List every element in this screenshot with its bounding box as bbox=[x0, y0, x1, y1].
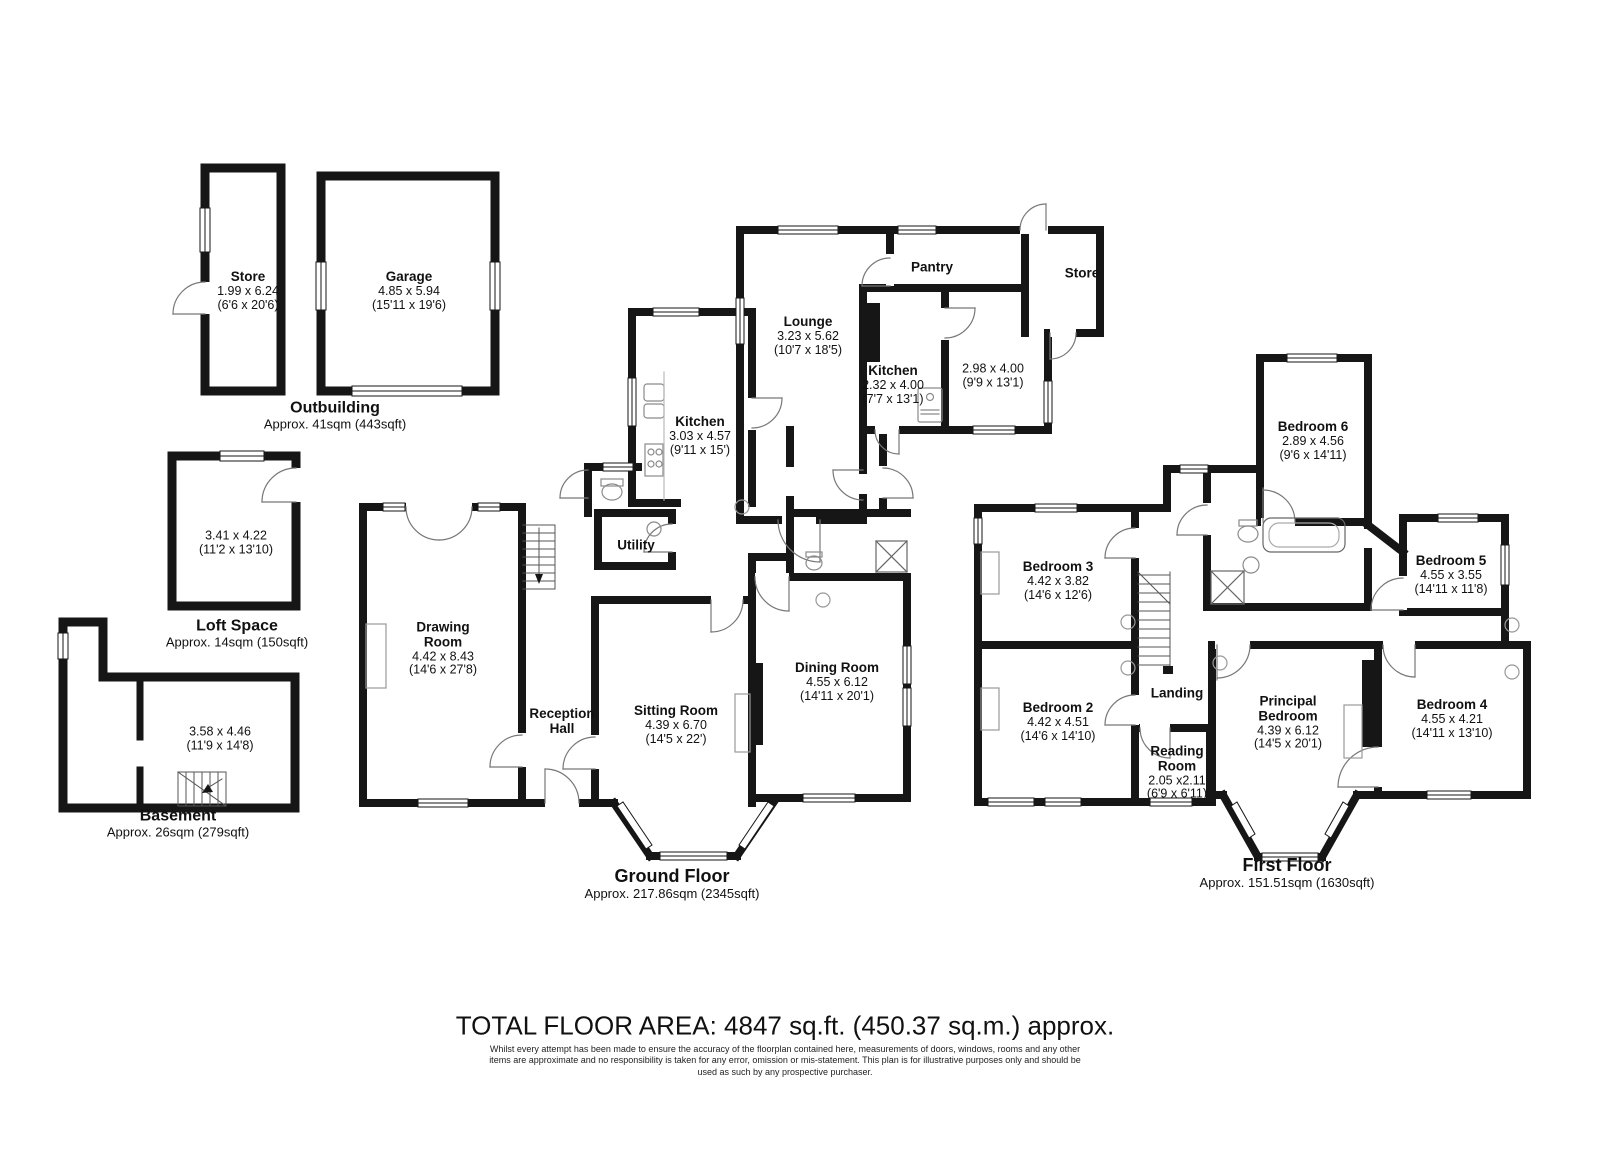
disclaimer: Whilst every attempt has been made to en… bbox=[485, 1044, 1085, 1078]
room-label-principal-bedroom: Principal Bedroom 4.39 x 6.12 (14'5 x 20… bbox=[1213, 694, 1363, 751]
room-label-loft: 3.41 x 4.22 (11'2 x 13'10) bbox=[161, 529, 311, 557]
room-label-kitchen: Kitchen 3.03 x 4.57 (9'11 x 15') bbox=[625, 415, 775, 457]
room-label-store-gf: Store bbox=[1007, 267, 1157, 282]
room-label-sitting-room: Sitting Room 4.39 x 6.70 (14'5 x 22') bbox=[601, 704, 751, 746]
room-label-bedroom3: Bedroom 3 4.42 x 3.82 (14'6 x 12'6) bbox=[983, 560, 1133, 602]
first-floor-title: First Floor Approx. 151.51sqm (1630sqft) bbox=[1147, 855, 1427, 891]
room-label-dining-room: Dining Room 4.55 x 6.12 (14'11 x 20'1) bbox=[762, 661, 912, 703]
room-label-reading-room: Reading Room 2.05 x2.11 (6'9 x 6'11) bbox=[1102, 744, 1252, 801]
room-label-bedroom2: Bedroom 2 4.42 x 4.51 (14'6 x 14'10) bbox=[983, 701, 1133, 743]
outbuilding-title: Outbuilding Approx. 41sqm (443sqft) bbox=[195, 399, 475, 432]
room-label-pantry: Pantry bbox=[857, 261, 1007, 276]
room-label-bedroom6: Bedroom 6 2.89 x 4.56 (9'6 x 14'11) bbox=[1238, 420, 1388, 462]
total-floor-area: TOTAL FLOOR AREA: 4847 sq.ft. (450.37 sq… bbox=[456, 1011, 1114, 1042]
ground-floor-title: Ground Floor Approx. 217.86sqm (2345sqft… bbox=[532, 866, 812, 902]
basement-title: Basement Approx. 26sqm (279sqft) bbox=[38, 807, 318, 840]
room-label-bedroom5: Bedroom 5 4.55 x 3.55 (14'11 x 11'8) bbox=[1376, 554, 1526, 596]
room-label-utility: Utility bbox=[561, 539, 711, 554]
floorplan-page: Store 1.99 x 6.24 (6'6 x 20'6) Garage 4.… bbox=[0, 0, 1600, 1155]
room-label-bedroom4: Bedroom 4 4.55 x 4.21 (14'11 x 13'10) bbox=[1377, 698, 1527, 740]
room-label-outbuilding-store: Store 1.99 x 6.24 (6'6 x 20'6) bbox=[173, 270, 323, 312]
floorplan-drawing bbox=[0, 0, 1600, 1155]
room-label-garage: Garage 4.85 x 5.94 (15'11 x 19'6) bbox=[334, 270, 484, 312]
room-label-drawing-room: Drawing Room 4.42 x 8.43 (14'6 x 27'8) bbox=[368, 620, 518, 677]
room-label-basement: 3.58 x 4.46 (11'9 x 14'8) bbox=[145, 725, 295, 753]
room-label-lounge: Lounge 3.23 x 5.62 (10'7 x 18'5) bbox=[733, 315, 883, 357]
loft-title: Loft Space Approx. 14sqm (150sqft) bbox=[97, 617, 377, 650]
room-label-rear-room: 2.98 x 4.00 (9'9 x 13'1) bbox=[918, 362, 1068, 390]
